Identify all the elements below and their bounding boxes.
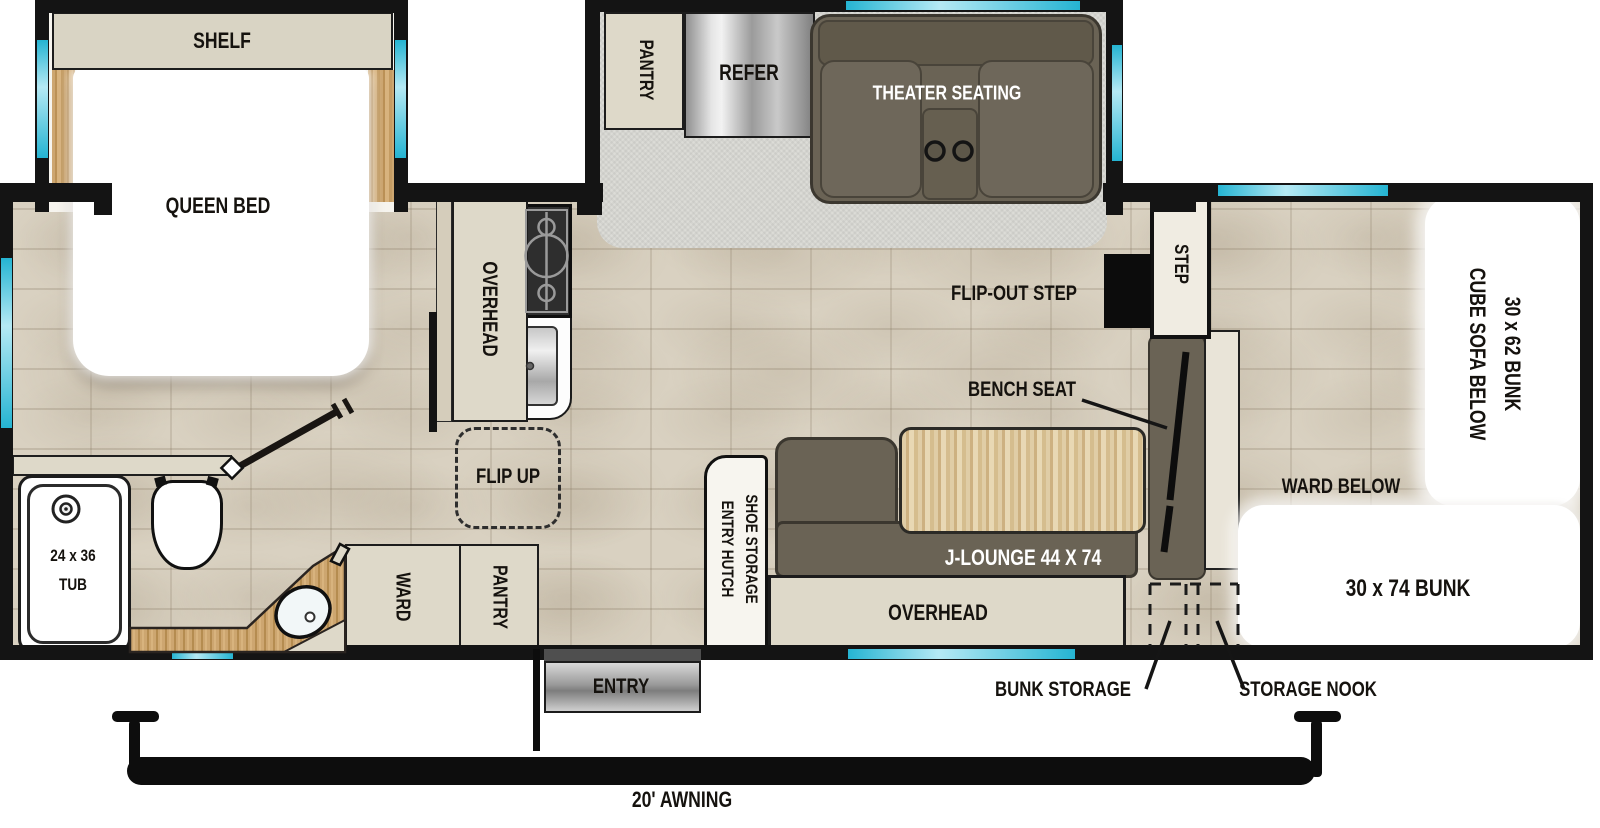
cube-sofa-below-label: CUBE SOFA BELOW <box>1464 268 1490 440</box>
floorplan: SHELF QUEEN BED PANTRY REFER THEATER SEA… <box>0 0 1600 828</box>
theater-sofa-cushion-right <box>978 60 1094 198</box>
awning-label: 20' AWNING <box>632 787 732 813</box>
wall-right <box>1580 183 1593 660</box>
window-bottom-bath <box>172 649 233 659</box>
j-lounge-label: J-LOUNGE 44 X 74 <box>945 545 1102 571</box>
flip-up-label: FLIP UP <box>476 465 540 489</box>
queen-bed-label: QUEEN BED <box>166 193 271 219</box>
kitchen-partial-wall <box>429 312 437 432</box>
bunk-partition-panel <box>1204 330 1240 570</box>
shoe-storage-label: SHOE STORAGE <box>741 494 761 603</box>
tub-size-label: 24 x 36 <box>50 546 95 566</box>
wall-top-left-tab <box>94 202 112 215</box>
entry-label: ENTRY <box>593 675 649 699</box>
step-label: STEP <box>1169 244 1191 284</box>
tub-label: TUB <box>59 575 87 595</box>
toilet <box>151 480 223 570</box>
bunk-30x74-label: 30 x 74 BUNK <box>1346 575 1471 603</box>
theater-sofa-cushion-left <box>820 60 922 198</box>
bed-wood-right <box>368 70 394 202</box>
slide-pantry-label: PANTRY <box>634 40 656 101</box>
dinette-table <box>899 427 1146 534</box>
step-wall-tab <box>1150 196 1196 212</box>
window-theater-right <box>1112 45 1122 161</box>
bath-pantry-label: PANTRY <box>488 565 511 629</box>
bunk-30x62-label: 30 x 62 BUNK <box>1499 297 1525 411</box>
storage-nook-label: STORAGE NOOK <box>1239 678 1377 702</box>
theater-sofa-console <box>922 108 978 200</box>
ward-label: WARD <box>391 573 414 622</box>
theater-slide-wall-left <box>585 0 600 215</box>
bathroom-wall <box>12 455 232 476</box>
bench-seat <box>1148 334 1206 580</box>
flip-out-step-block <box>1104 254 1151 328</box>
theater-seating-label: THEATER SEATING <box>873 83 1022 106</box>
flip-out-step-label: FLIP-OUT STEP <box>951 282 1077 306</box>
window-bed-left <box>37 40 48 158</box>
stove-cooktop <box>521 204 572 318</box>
wall-top-mid <box>395 183 603 202</box>
ward-below-label: WARD BELOW <box>1282 475 1401 499</box>
wall-top-left <box>0 183 112 202</box>
window-bed-right <box>395 40 406 158</box>
awning-bar <box>127 757 1315 785</box>
window-left-wall <box>1 258 12 428</box>
kitchen-overhead-label: OVERHEAD <box>477 261 501 356</box>
kitchen-sink <box>523 326 558 406</box>
bunk-storage-label: BUNK STORAGE <box>995 678 1131 702</box>
theater-slide-foot <box>577 197 602 215</box>
entry-hutch-label: ENTRY HUTCH <box>717 501 737 598</box>
bed-slide-wall-top <box>35 0 408 13</box>
wall-bottom <box>0 645 1593 660</box>
window-bottom-living <box>848 649 1075 659</box>
queen-bed <box>73 68 369 376</box>
window-theater-top <box>846 1 1080 10</box>
window-bunk-top <box>1218 185 1388 196</box>
bench-seat-label: BENCH SEAT <box>968 378 1076 402</box>
shelf-label: SHELF <box>193 28 251 54</box>
kitchen-back-wall <box>436 198 452 422</box>
refer-label: REFER <box>719 60 779 86</box>
living-overhead-label: OVERHEAD <box>888 600 988 626</box>
